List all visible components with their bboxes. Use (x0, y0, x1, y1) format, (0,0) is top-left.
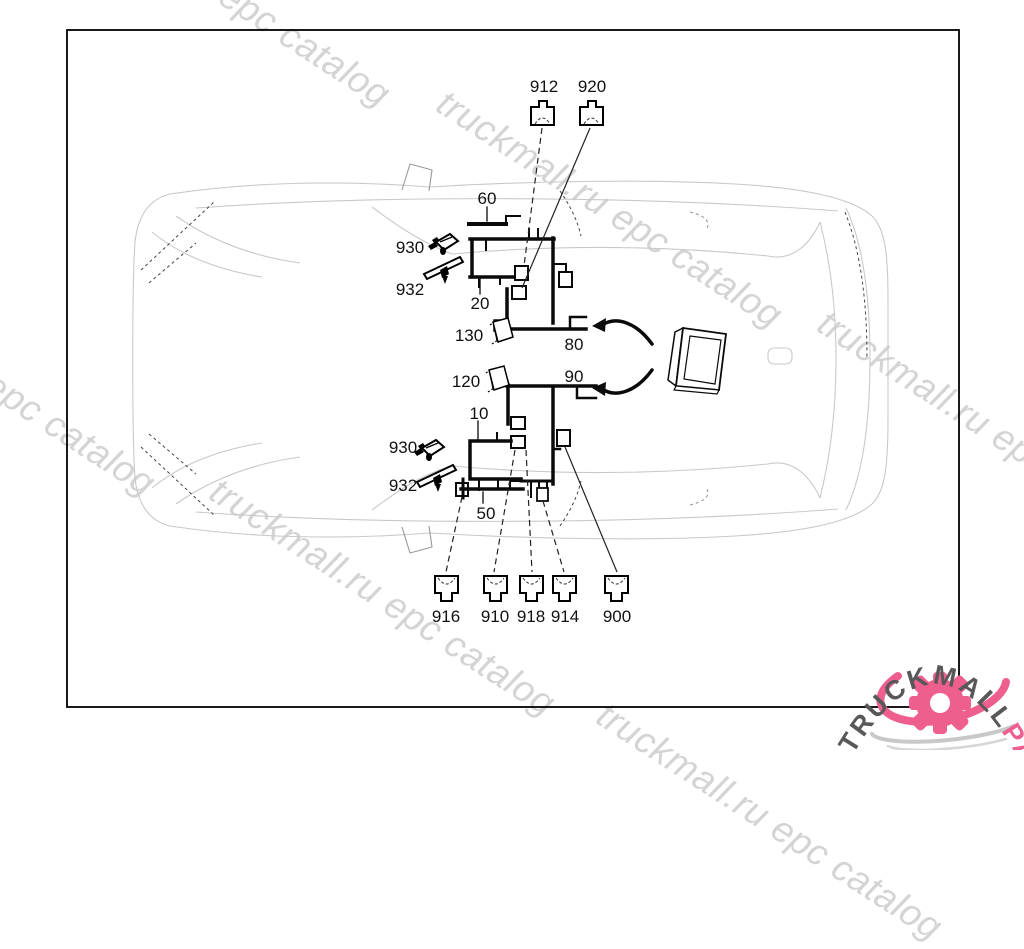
connector-920-icon (580, 101, 603, 125)
connector-918-icon (520, 576, 543, 601)
callout-930-bottom-label: 930 (389, 438, 417, 457)
logo-parts-text: PARTS (0, 0, 1024, 750)
connector-914-icon (553, 576, 576, 601)
leader-914 (543, 501, 564, 572)
module-3d (668, 328, 726, 394)
callout-60-label: 60 (478, 189, 497, 208)
connector-90-stub (577, 388, 596, 398)
callout-910-label: 910 (481, 607, 509, 626)
strip-932-top-icon (424, 257, 463, 284)
leader-918 (526, 450, 532, 572)
callout-930-top-label: 930 (396, 238, 424, 257)
callout-90-label: 90 (565, 367, 584, 386)
leader-900 (565, 447, 617, 572)
callout-918-label: 918 (517, 607, 545, 626)
truckmall-logo: TRUCKMALLPARTS (0, 0, 1024, 750)
connector-80-stub (570, 317, 586, 329)
harness-connector (537, 488, 548, 501)
harness-connector (511, 436, 525, 448)
connector-910-icon (484, 576, 507, 601)
callout-20-label: 20 (471, 294, 490, 313)
diagram-canvas: 912 920 60 930 932 20 130 80 120 90 10 9… (0, 0, 1024, 750)
callout-932-top-label: 932 (396, 280, 424, 299)
connector-900-icon (605, 576, 628, 601)
callout-920-label: 920 (578, 77, 606, 96)
callout-10-label: 10 (470, 404, 489, 423)
callout-130-label: 130 (455, 326, 483, 345)
callout-916-label: 916 (432, 607, 460, 626)
connector-916-icon (435, 576, 458, 601)
harness-connector (511, 417, 525, 429)
connector-120-icon (486, 366, 509, 392)
callout-932-bottom-label: 932 (389, 476, 417, 495)
harness-connector (512, 286, 526, 299)
lower-harness (456, 385, 596, 503)
diagram-border (67, 30, 959, 707)
harness-connector (559, 272, 572, 287)
arrow-top (592, 318, 652, 344)
harness-connector (557, 430, 570, 446)
sensor-930-bottom-icon (414, 440, 444, 461)
leader-910 (494, 450, 515, 572)
catalog-page: { "watermark": { "text": "truckmall.ru e… (0, 0, 1024, 750)
callout-50-label: 50 (477, 504, 496, 523)
callout-900-label: 900 (603, 607, 631, 626)
strip-932-bottom-icon (417, 465, 456, 492)
arrow-bottom (592, 370, 652, 396)
callout-120-label: 120 (452, 372, 480, 391)
callout-80-label: 80 (565, 335, 584, 354)
sensor-930-top-icon (428, 234, 458, 255)
mirror-right-icon (402, 526, 432, 553)
callout-914-label: 914 (551, 607, 579, 626)
leader-912 (524, 128, 542, 266)
callout-912-label: 912 (530, 77, 558, 96)
connector-912-icon (531, 101, 554, 125)
svg-text:TRUCKMALLPARTS: TRUCKMALLPARTS (0, 0, 1024, 750)
car-outline (133, 164, 888, 553)
leader-lines (446, 128, 617, 572)
